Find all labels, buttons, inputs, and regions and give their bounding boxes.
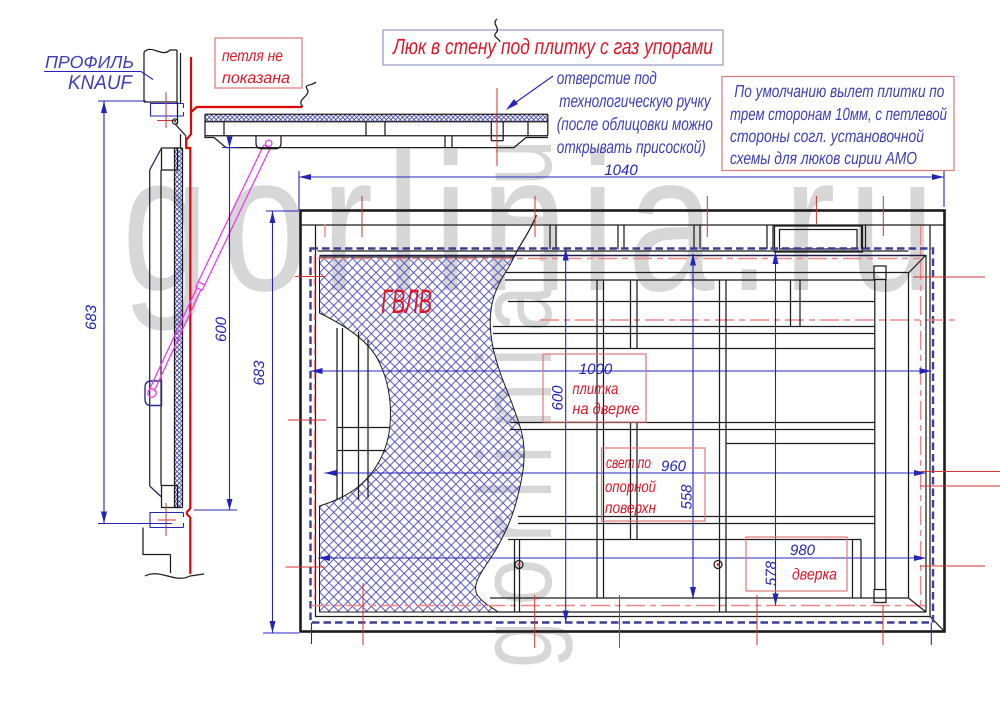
svg-text:открывать присоской): открывать присоской) <box>557 137 706 157</box>
svg-text:опорной: опорной <box>605 479 656 496</box>
svg-text:ГВЛВ: ГВЛВ <box>381 283 432 321</box>
svg-text:578: 578 <box>763 560 780 586</box>
svg-text:683: 683 <box>83 304 100 330</box>
svg-text:960: 960 <box>661 458 687 475</box>
svg-text:на дверке: на дверке <box>572 401 639 418</box>
svg-text:плитка: плитка <box>572 381 618 398</box>
svg-text:поверхн: поверхн <box>605 500 656 517</box>
svg-text:свет по: свет по <box>606 455 651 472</box>
svg-text:технологическую ручку: технологическую ручку <box>559 91 711 111</box>
svg-text:980: 980 <box>790 542 816 559</box>
svg-text:ПРОФИЛЬ: ПРОФИЛЬ <box>45 52 134 72</box>
svg-text:стороны согл. установочной: стороны согл. установочной <box>730 126 924 146</box>
svg-text:Люк в стену под плитку с газ у: Люк в стену под плитку с газ упорами <box>391 34 713 59</box>
svg-text:По умолчанию вылет плитки по: По умолчанию вылет плитки по <box>734 81 944 101</box>
svg-text:KNAUF: KNAUF <box>68 72 134 94</box>
svg-text:600: 600 <box>213 316 230 342</box>
svg-text:(после облицовки можно: (после облицовки можно <box>557 114 713 134</box>
svg-text:558: 558 <box>679 484 696 510</box>
svg-text:600: 600 <box>550 385 567 411</box>
svg-text:трем сторонам 10мм, с петлевой: трем сторонам 10мм, с петлевой <box>730 104 947 124</box>
svg-text:схемы для люков сирии АМО: схемы для люков сирии АМО <box>730 148 917 168</box>
svg-text:петля не: петля не <box>222 48 283 65</box>
svg-text:показана: показана <box>222 70 290 87</box>
svg-text:дверка: дверка <box>792 567 837 584</box>
svg-text:1040: 1040 <box>604 162 638 179</box>
svg-text:отверстие под: отверстие под <box>557 68 657 88</box>
svg-text:1000: 1000 <box>579 361 613 378</box>
svg-text:683: 683 <box>251 360 268 386</box>
